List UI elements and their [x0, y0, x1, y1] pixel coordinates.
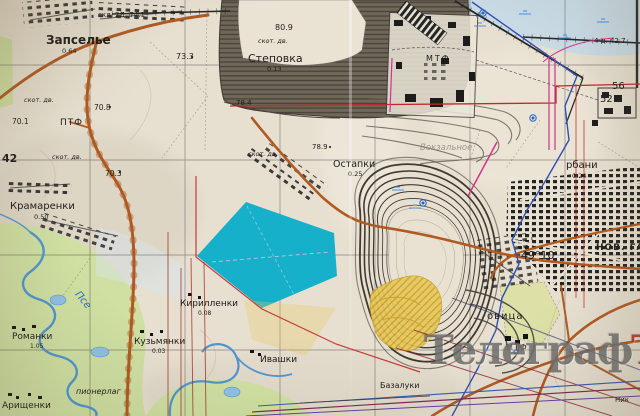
village-zapselye	[22, 0, 94, 28]
pond	[91, 347, 109, 357]
pond	[50, 295, 66, 305]
cyan-water-area	[197, 202, 337, 308]
fields-southeast	[500, 282, 560, 344]
pond	[224, 387, 240, 397]
map-photo: Запселье0.64скл. 2Д. 74.173.3скот. дв.70…	[0, 0, 640, 416]
village-gorbani	[476, 232, 538, 289]
dump-window	[238, 0, 366, 65]
map-graphic	[0, 0, 640, 416]
